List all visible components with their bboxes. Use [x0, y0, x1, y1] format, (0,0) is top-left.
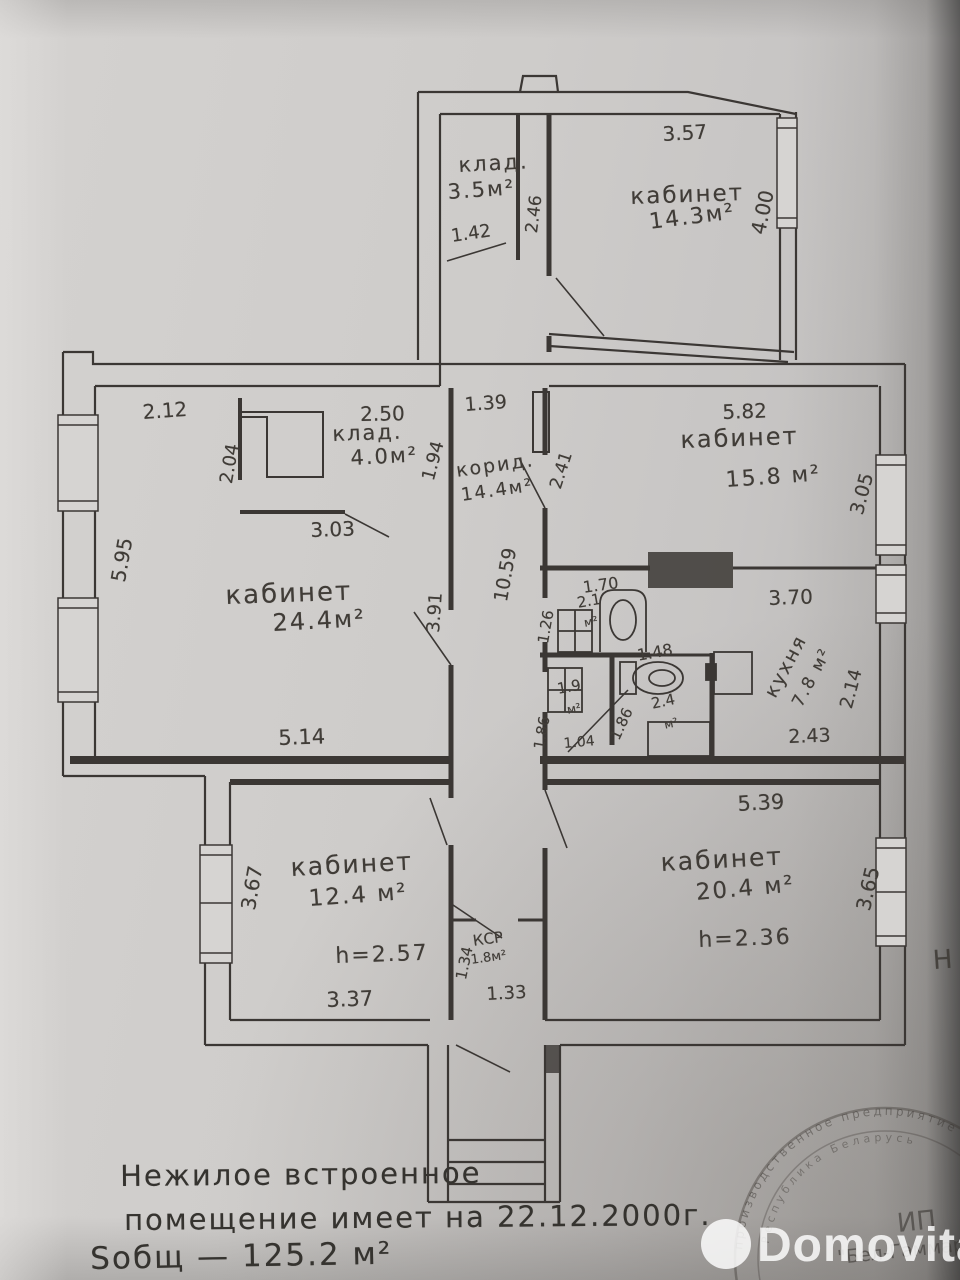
room-label: кабинет [225, 579, 353, 609]
dim-label: 1.39 [464, 393, 508, 415]
chimney-bump [520, 76, 558, 92]
room-area: 4.0м² [350, 444, 419, 469]
dim-label: 3.03 [310, 518, 355, 540]
note-line3: Sобщ — 125.2 м² [90, 1239, 393, 1275]
note-line2: помещение имеет на 22.12.2000г. [124, 1201, 712, 1235]
dim-label: 2.12 [142, 399, 188, 422]
dim-label: 5.82 [722, 400, 767, 422]
dim-label: 2.46 [524, 194, 545, 234]
dim-label: 5.14 [278, 726, 325, 749]
room-label: кабинет [290, 849, 414, 880]
room-area-unit: м² [663, 716, 679, 731]
entrance-pier [545, 1045, 560, 1073]
outer-walls [63, 76, 905, 1202]
room-area-unit: м² [583, 615, 599, 629]
kitchen-sink-icon [714, 652, 752, 694]
room-height: h=2.36 [698, 927, 792, 952]
room-label: кабинет [660, 844, 784, 875]
dim-label: 3.57 [662, 122, 708, 144]
dim-label: 3.91 [425, 592, 446, 633]
room-area: 3.5м² [447, 177, 516, 203]
stray-handwritten-mark: Н [932, 947, 953, 974]
room-label: КСР [472, 930, 504, 949]
windows [58, 118, 906, 963]
room-height: h=2.57 [335, 943, 429, 968]
wall-pier [648, 552, 733, 588]
room-label: клад. [458, 151, 529, 176]
dim-label: 2.50 [360, 403, 405, 424]
domovita-watermark: Domovita [757, 1218, 960, 1273]
dim-label: 5.39 [737, 792, 785, 815]
scanned-floor-plan-page: производственное предприятие Республика … [0, 0, 960, 1280]
dim-label: 2.43 [788, 727, 831, 747]
room-area: 24.4м² [272, 606, 366, 635]
room-label: кабинет [680, 424, 799, 452]
room-area-unit: м² [566, 702, 582, 716]
dim-label: 1.33 [486, 984, 527, 1004]
room-area: 1.9 [556, 678, 582, 697]
domovita-logo-icon [701, 1219, 751, 1269]
dim-label: 1.04 [563, 734, 595, 751]
dim-label: 3.70 [768, 586, 813, 608]
dim-label: 3.37 [326, 988, 373, 1011]
note-line1: Нежилое встроенное [120, 1159, 482, 1191]
fixtures [548, 590, 752, 756]
